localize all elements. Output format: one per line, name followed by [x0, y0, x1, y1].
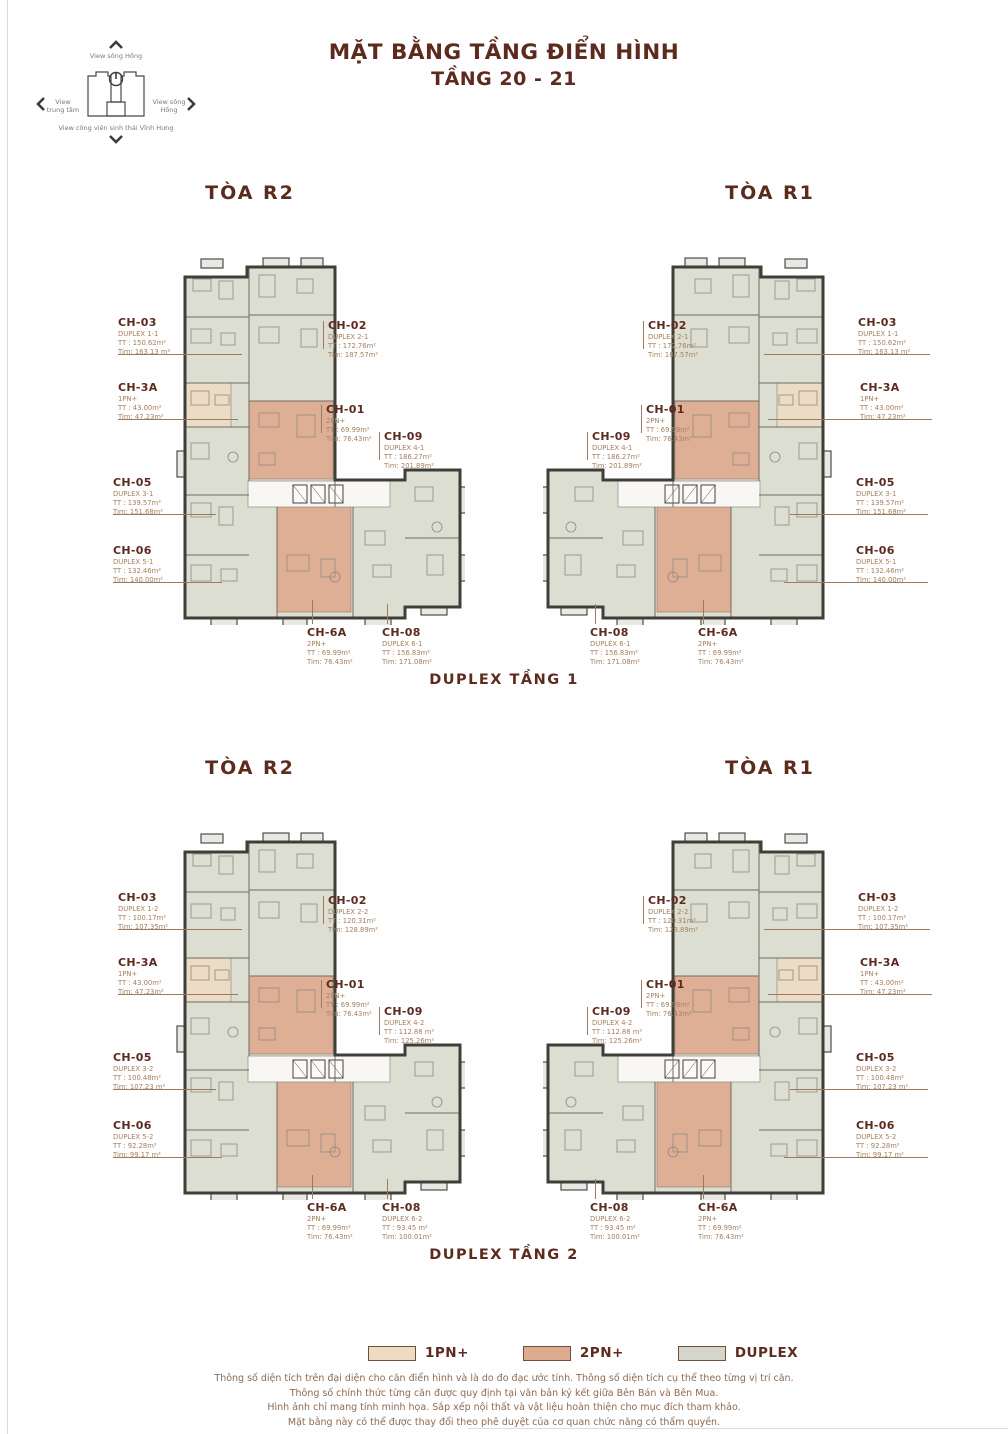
leader-line: [587, 1007, 588, 1035]
unit-code: CH-06: [113, 1119, 199, 1132]
unit-area-tim: Tim: 107.23 m²: [856, 1083, 942, 1092]
unit-area-tt: TT : 69.99m²: [698, 1224, 784, 1233]
unit-area-tt: TT : 120.31m²: [328, 917, 414, 926]
unit-label-ch-06: CH-06DUPLEX 5-1TT : 132.46m²Tim: 140.00m…: [856, 544, 942, 584]
unit-area-tim: Tim: 107.35m²: [118, 923, 204, 932]
unit-code: CH-08: [382, 626, 468, 639]
unit-type: 2PN+: [307, 640, 393, 649]
leader-line: [312, 1175, 313, 1199]
unit-area-tim: Tim: 107.23 m²: [113, 1083, 199, 1092]
unit-label-ch-02: CH-02DUPLEX 2-1TT : 172.76m²Tim: 187.57m…: [328, 319, 414, 359]
unit-type: DUPLEX 5-1: [856, 558, 942, 567]
unit-area-tim: Tim: 163.13 m²: [118, 348, 204, 357]
unit-label-ch-05: CH-05DUPLEX 3-1TT : 139.57m²Tim: 151.68m…: [856, 476, 942, 516]
unit-area-tt: TT : 43.00m²: [860, 979, 946, 988]
unit-label-ch-08: CH-08DUPLEX 6-1TT : 156.83m²Tim: 171.08m…: [590, 626, 676, 666]
leader-line: [643, 896, 644, 924]
unit-label-ch-08: CH-08DUPLEX 6-2TT : 93.45 m²Tim: 100.01m…: [382, 1201, 468, 1241]
unit-label-ch-05: CH-05DUPLEX 3-2TT : 100.48m²Tim: 107.23 …: [856, 1051, 942, 1091]
legend: 1PN+2PN+DUPLEX: [368, 1345, 798, 1361]
unit-label-ch-03: CH-03DUPLEX 1-1TT : 150.62m²Tim: 163.13 …: [118, 316, 204, 356]
unit-area-tt: TT : 156.83m²: [382, 649, 468, 658]
unit-area-tt: TT : 69.99m²: [307, 649, 393, 658]
unit-code: CH-06: [856, 1119, 942, 1132]
unit-area-tim: Tim: 99.17 m²: [113, 1151, 199, 1160]
tower-title-r2: TÒA R2: [190, 182, 310, 204]
unit-area-tim: Tim: 100.01m²: [382, 1233, 468, 1242]
unit-area-tim: Tim: 171.08m²: [382, 658, 468, 667]
unit-type: DUPLEX 4-1: [384, 444, 470, 453]
leader-line: [312, 600, 313, 624]
unit-type: 2PN+: [326, 417, 412, 426]
unit-code: CH-6A: [307, 626, 393, 639]
unit-code: CH-02: [328, 894, 414, 907]
unit-area-tt: TT : 172.76m²: [648, 342, 734, 351]
unit-area-tim: Tim: 128.89m²: [648, 926, 734, 935]
unit-area-tt: TT : 100.17m²: [118, 914, 204, 923]
unit-area-tim: Tim: 125.26m²: [592, 1037, 678, 1046]
unit-type: DUPLEX 5-1: [113, 558, 199, 567]
legend-label: 2PN+: [580, 1345, 624, 1361]
unit-label-ch-6a: CH-6A2PN+TT : 69.99m²Tim: 76.43m²: [698, 626, 784, 666]
unit-type: 1PN+: [860, 970, 946, 979]
unit-area-tim: Tim: 187.57m²: [648, 351, 734, 360]
unit-label-ch-05: CH-05DUPLEX 3-2TT : 100.48m²Tim: 107.23 …: [113, 1051, 199, 1091]
unit-area-tim: Tim: 107.35m²: [858, 923, 944, 932]
unit-area-tim: Tim: 125.26m²: [384, 1037, 470, 1046]
unit-area-tim: Tim: 100.01m²: [590, 1233, 676, 1242]
unit-area-tt: TT : 69.99m²: [307, 1224, 393, 1233]
unit-code: CH-08: [590, 1201, 676, 1214]
unit-label-ch-08: CH-08DUPLEX 6-1TT : 156.83m²Tim: 171.08m…: [382, 626, 468, 666]
unit-code: CH-05: [856, 1051, 942, 1064]
footer-line: Thông số diện tích trên đại diện cho căn…: [0, 1372, 1008, 1387]
unit-code: CH-01: [326, 403, 412, 416]
unit-label-ch-06: CH-06DUPLEX 5-1TT : 132.46m²Tim: 140.00m…: [113, 544, 199, 584]
unit-area-tim: Tim: 47.23m²: [118, 413, 204, 422]
unit-label-ch-02: CH-02DUPLEX 2-2TT : 120.31m²Tim: 128.89m…: [328, 894, 414, 934]
unit-area-tim: Tim: 151.68m²: [113, 508, 199, 517]
unit-area-tim: Tim: 47.23m²: [860, 988, 946, 997]
unit-code: CH-01: [646, 978, 732, 991]
unit-area-tt: TT : 100.48m²: [856, 1074, 942, 1083]
unit-label-ch-02: CH-02DUPLEX 2-1TT : 172.76m²Tim: 187.57m…: [648, 319, 734, 359]
unit-area-tim: Tim: 47.23m²: [860, 413, 946, 422]
unit-area-tt: TT : 100.17m²: [858, 914, 944, 923]
unit-code: CH-03: [118, 891, 204, 904]
unit-area-tim: Tim: 76.43m²: [698, 658, 784, 667]
unit-type: DUPLEX 2-1: [328, 333, 414, 342]
unit-area-tt: TT : 43.00m²: [860, 404, 946, 413]
unit-type: DUPLEX 6-1: [382, 640, 468, 649]
footer-line: Hình ảnh chỉ mang tính minh họa. Sắp xếp…: [0, 1401, 1008, 1416]
unit-area-tim: Tim: 140.00m²: [856, 576, 942, 585]
unit-label-ch-09: CH-09DUPLEX 4-1TT : 186.27m²Tim: 201.89m…: [592, 430, 678, 470]
unit-area-tt: TT : 100.48m²: [113, 1074, 199, 1083]
section-level-2: TÒA R2TÒA R1CH-03DUPLEX 1-2TT : 100.17m²…: [0, 575, 1008, 1285]
unit-code: CH-3A: [118, 381, 204, 394]
unit-label-ch-03: CH-03DUPLEX 1-1TT : 150.62m²Tim: 163.13 …: [858, 316, 944, 356]
unit-type: 2PN+: [698, 1215, 784, 1224]
unit-code: CH-3A: [860, 381, 946, 394]
unit-code: CH-02: [648, 894, 734, 907]
unit-code: CH-02: [328, 319, 414, 332]
unit-type: DUPLEX 3-2: [113, 1065, 199, 1074]
unit-type: DUPLEX 2-2: [648, 908, 734, 917]
unit-label-ch-09: CH-09DUPLEX 4-2TT : 112.88 m²Tim: 125.26…: [384, 1005, 470, 1045]
unit-area-tt: TT : 186.27m²: [592, 453, 678, 462]
tower-title-r1: TÒA R1: [710, 182, 830, 204]
unit-area-tt: TT : 150.62m²: [858, 339, 944, 348]
unit-area-tim: Tim: 201.89m²: [384, 462, 470, 471]
unit-code: CH-08: [382, 1201, 468, 1214]
unit-area-tt: TT : 69.99m²: [698, 649, 784, 658]
unit-area-tt: TT : 186.27m²: [384, 453, 470, 462]
unit-area-tt: TT : 120.31m²: [648, 917, 734, 926]
unit-area-tt: TT : 132.46m²: [113, 567, 199, 576]
legend-swatch: [523, 1346, 571, 1361]
unit-code: CH-09: [592, 430, 678, 443]
unit-label-ch-3a: CH-3A1PN+TT : 43.00m²Tim: 47.23m²: [118, 381, 204, 421]
unit-label-ch-09: CH-09DUPLEX 4-1TT : 186.27m²Tim: 201.89m…: [384, 430, 470, 470]
unit-type: DUPLEX 6-2: [382, 1215, 468, 1224]
unit-label-ch-3a: CH-3A1PN+TT : 43.00m²Tim: 47.23m²: [860, 956, 946, 996]
legend-label: 1PN+: [425, 1345, 469, 1361]
unit-type: 1PN+: [860, 395, 946, 404]
unit-code: CH-3A: [860, 956, 946, 969]
unit-code: CH-6A: [698, 1201, 784, 1214]
unit-area-tt: TT : 112.88 m²: [384, 1028, 470, 1037]
unit-code: CH-6A: [307, 1201, 393, 1214]
unit-area-tim: Tim: 151.68m²: [856, 508, 942, 517]
unit-type: DUPLEX 5-2: [856, 1133, 942, 1142]
unit-label-ch-6a: CH-6A2PN+TT : 69.99m²Tim: 76.43m²: [698, 1201, 784, 1241]
unit-code: CH-09: [384, 1005, 470, 1018]
unit-type: 2PN+: [646, 417, 732, 426]
unit-type: DUPLEX 2-1: [648, 333, 734, 342]
unit-type: DUPLEX 3-1: [113, 490, 199, 499]
leader-line: [323, 321, 324, 349]
unit-type: 2PN+: [326, 992, 412, 1001]
leader-line: [387, 604, 388, 624]
unit-type: DUPLEX 1-1: [118, 330, 204, 339]
unit-type: DUPLEX 6-1: [590, 640, 676, 649]
unit-code: CH-09: [592, 1005, 678, 1018]
leader-line: [595, 604, 596, 624]
unit-type: DUPLEX 4-2: [592, 1019, 678, 1028]
unit-code: CH-03: [858, 316, 944, 329]
unit-code: CH-3A: [118, 956, 204, 969]
legend-swatch: [678, 1346, 726, 1361]
unit-area-tim: Tim: 99.17 m²: [856, 1151, 942, 1160]
leader-line: [321, 980, 322, 1008]
unit-code: CH-09: [384, 430, 470, 443]
unit-type: DUPLEX 1-1: [858, 330, 944, 339]
unit-label-ch-6a: CH-6A2PN+TT : 69.99m²Tim: 76.43m²: [307, 1201, 393, 1241]
unit-label-ch-3a: CH-3A1PN+TT : 43.00m²Tim: 47.23m²: [118, 956, 204, 996]
unit-code: CH-08: [590, 626, 676, 639]
unit-type: DUPLEX 3-1: [856, 490, 942, 499]
unit-area-tim: Tim: 76.43m²: [307, 1233, 393, 1242]
tower-title-r1: TÒA R1: [710, 757, 830, 779]
legend-label: DUPLEX: [735, 1345, 798, 1361]
unit-type: 2PN+: [698, 640, 784, 649]
unit-area-tim: Tim: 128.89m²: [328, 926, 414, 935]
unit-code: CH-06: [113, 544, 199, 557]
unit-code: CH-06: [856, 544, 942, 557]
unit-area-tt: TT : 139.57m²: [856, 499, 942, 508]
unit-label-ch-08: CH-08DUPLEX 6-2TT : 93.45 m²Tim: 100.01m…: [590, 1201, 676, 1241]
leader-line: [703, 1175, 704, 1199]
unit-area-tt: TT : 43.00m²: [118, 979, 204, 988]
footer-line: Mặt bằng này có thể được thay đổi theo p…: [0, 1416, 1008, 1431]
unit-code: CH-05: [113, 1051, 199, 1064]
unit-area-tt: TT : 150.62m²: [118, 339, 204, 348]
legend-swatch: [368, 1346, 416, 1361]
leader-line: [643, 321, 644, 349]
footer-disclaimer: Thông số diện tích trên đại diện cho căn…: [0, 1372, 1008, 1431]
unit-area-tt: TT : 112.88 m²: [592, 1028, 678, 1037]
unit-area-tim: Tim: 47.23m²: [118, 988, 204, 997]
unit-area-tt: TT : 156.83m²: [590, 649, 676, 658]
unit-type: DUPLEX 5-2: [113, 1133, 199, 1142]
unit-area-tt: TT : 93.45 m²: [590, 1224, 676, 1233]
leader-line: [595, 1179, 596, 1199]
unit-label-ch-03: CH-03DUPLEX 1-2TT : 100.17m²Tim: 107.35m…: [858, 891, 944, 931]
unit-type: 2PN+: [646, 992, 732, 1001]
unit-label-ch-09: CH-09DUPLEX 4-2TT : 112.88 m²Tim: 125.26…: [592, 1005, 678, 1045]
unit-type: DUPLEX 2-2: [328, 908, 414, 917]
leader-line: [587, 432, 588, 460]
unit-area-tim: Tim: 201.89m²: [592, 462, 678, 471]
unit-label-ch-06: CH-06DUPLEX 5-2TT : 92.28m²Tim: 99.17 m²: [113, 1119, 199, 1159]
unit-area-tim: Tim: 76.43m²: [307, 658, 393, 667]
unit-area-tt: TT : 132.46m²: [856, 567, 942, 576]
unit-type: 1PN+: [118, 970, 204, 979]
unit-label-ch-6a: CH-6A2PN+TT : 69.99m²Tim: 76.43m²: [307, 626, 393, 666]
unit-code: CH-03: [858, 891, 944, 904]
leader-line: [321, 405, 322, 433]
unit-area-tt: TT : 43.00m²: [118, 404, 204, 413]
unit-area-tt: TT : 92.28m²: [113, 1142, 199, 1151]
legend-item-duplex: DUPLEX: [678, 1345, 798, 1361]
unit-code: CH-01: [646, 403, 732, 416]
unit-area-tt: TT : 93.45 m²: [382, 1224, 468, 1233]
unit-type: DUPLEX 1-2: [858, 905, 944, 914]
leader-line: [641, 980, 642, 1008]
unit-area-tim: Tim: 187.57m²: [328, 351, 414, 360]
unit-area-tim: Tim: 140.00m²: [113, 576, 199, 585]
unit-code: CH-6A: [698, 626, 784, 639]
unit-label-ch-05: CH-05DUPLEX 3-1TT : 139.57m²Tim: 151.68m…: [113, 476, 199, 516]
tower-title-r2: TÒA R2: [190, 757, 310, 779]
unit-type: DUPLEX 1-2: [118, 905, 204, 914]
unit-label-ch-06: CH-06DUPLEX 5-2TT : 92.28m²Tim: 99.17 m²: [856, 1119, 942, 1159]
unit-area-tt: TT : 172.76m²: [328, 342, 414, 351]
unit-type: DUPLEX 3-2: [856, 1065, 942, 1074]
unit-area-tt: TT : 139.57m²: [113, 499, 199, 508]
unit-area-tt: TT : 92.28m²: [856, 1142, 942, 1151]
leader-line: [703, 600, 704, 624]
unit-type: DUPLEX 4-1: [592, 444, 678, 453]
legend-item-1pnplus: 1PN+: [368, 1345, 469, 1361]
unit-code: CH-02: [648, 319, 734, 332]
unit-label-ch-03: CH-03DUPLEX 1-2TT : 100.17m²Tim: 107.35m…: [118, 891, 204, 931]
brochure-page: View sông Hồng View trung tâm View sông …: [0, 0, 1008, 1434]
unit-area-tim: Tim: 171.08m²: [590, 658, 676, 667]
legend-item-2pnplus: 2PN+: [523, 1345, 624, 1361]
unit-label-ch-3a: CH-3A1PN+TT : 43.00m²Tim: 47.23m²: [860, 381, 946, 421]
section-caption: DUPLEX TẦNG 2: [0, 1247, 1008, 1263]
unit-code: CH-03: [118, 316, 204, 329]
unit-label-ch-02: CH-02DUPLEX 2-2TT : 120.31m²Tim: 128.89m…: [648, 894, 734, 934]
unit-code: CH-05: [856, 476, 942, 489]
unit-code: CH-05: [113, 476, 199, 489]
unit-type: DUPLEX 4-2: [384, 1019, 470, 1028]
leader-line: [323, 896, 324, 924]
leader-line: [387, 1179, 388, 1199]
leader-line: [641, 405, 642, 433]
unit-type: 2PN+: [307, 1215, 393, 1224]
unit-code: CH-01: [326, 978, 412, 991]
unit-type: 1PN+: [118, 395, 204, 404]
unit-area-tim: Tim: 76.43m²: [698, 1233, 784, 1242]
footer-line: Thông số chính thức từng căn được quy đị…: [0, 1387, 1008, 1402]
unit-type: DUPLEX 6-2: [590, 1215, 676, 1224]
unit-area-tim: Tim: 163.13 m²: [858, 348, 944, 357]
